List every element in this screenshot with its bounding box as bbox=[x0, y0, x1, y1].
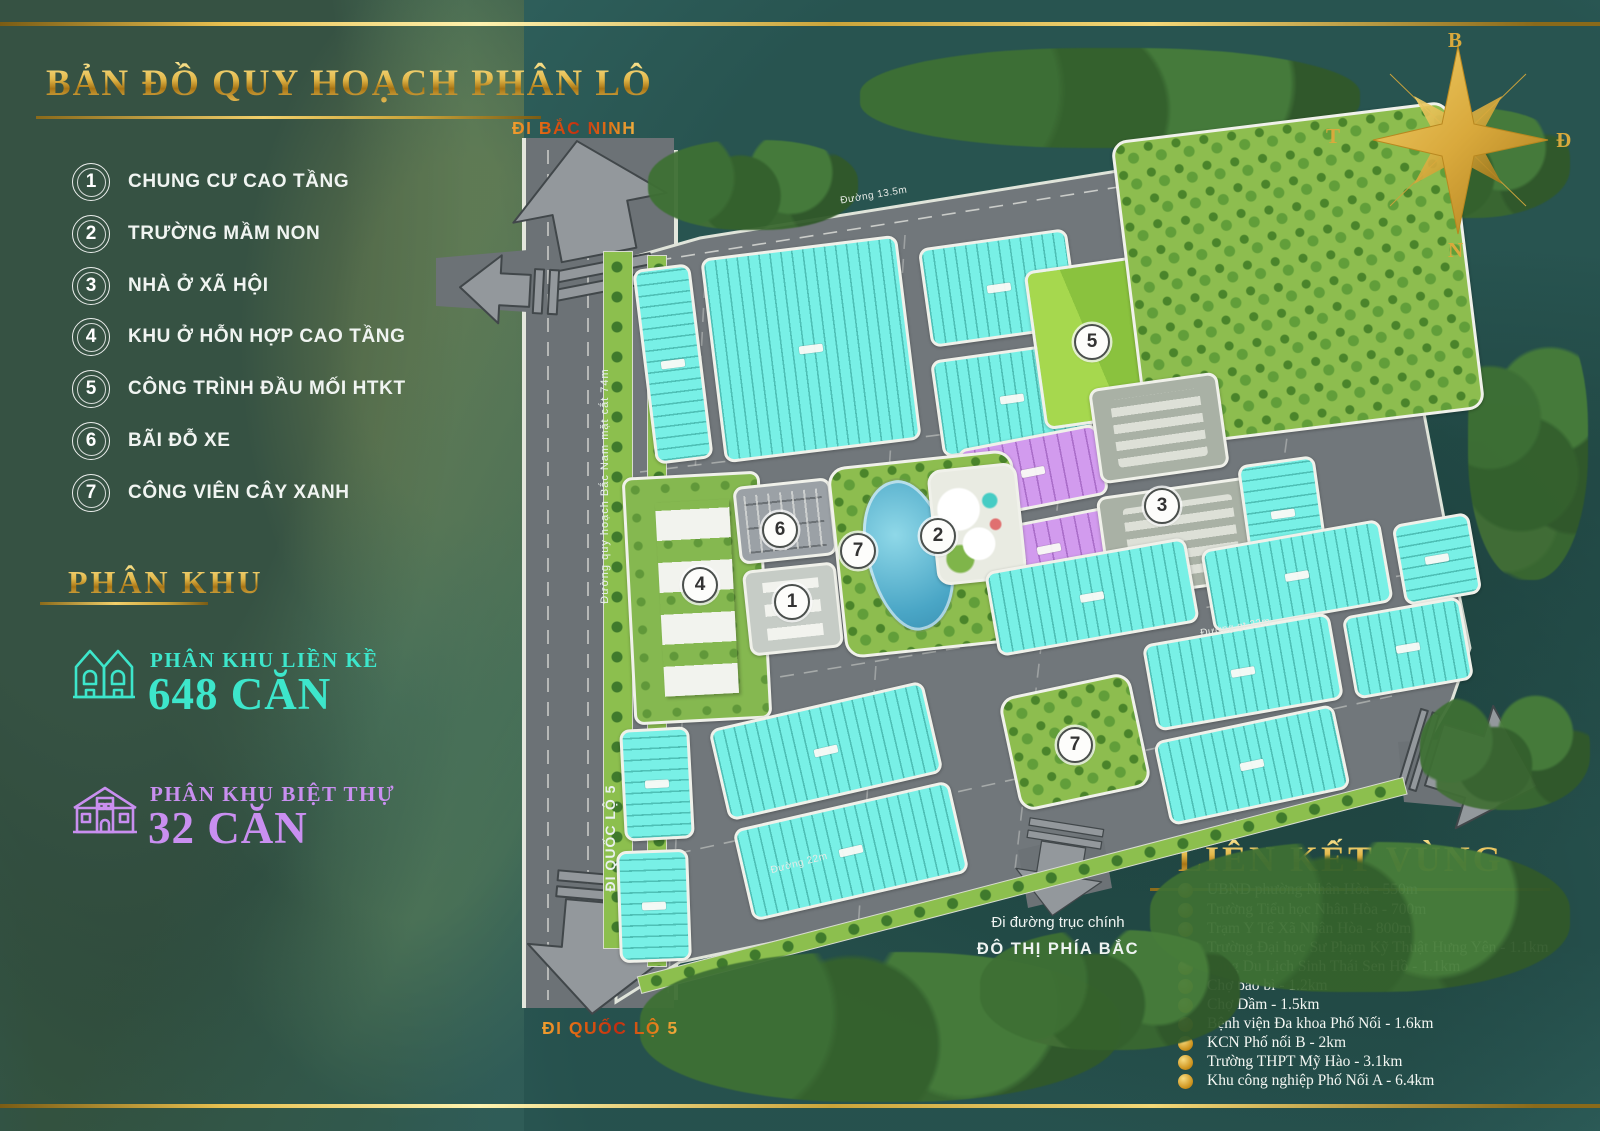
map-marker: 5 bbox=[1074, 324, 1110, 360]
tree-cluster bbox=[648, 140, 858, 230]
tree-cluster bbox=[1468, 300, 1588, 580]
direction-bac-ninh: ĐI BẮC NINH bbox=[512, 118, 636, 139]
compass-main-star bbox=[1373, 46, 1548, 234]
bottom-gold-border bbox=[0, 1104, 1600, 1108]
lot-block-lk bbox=[1391, 512, 1482, 606]
masterplan-poster: BẢN ĐỒ QUY HOẠCH PHÂN LÔ 1 CHUNG CƯ CAO … bbox=[0, 0, 1600, 1131]
road-label-ql5-vertical: ĐI QUỐC LỘ 5 bbox=[602, 768, 618, 908]
axis-label-line2: ĐÔ THỊ PHÍA BẮC bbox=[948, 940, 1168, 959]
direction-quoc-lo-5: ĐI QUỐC LỘ 5 bbox=[542, 1018, 679, 1039]
compass-east-label: Đ bbox=[1556, 128, 1571, 153]
map-marker: 6 bbox=[762, 512, 798, 548]
compass-north-label: B bbox=[1448, 28, 1462, 53]
map-marker: 3 bbox=[1144, 488, 1180, 524]
map-marker: 7 bbox=[1057, 727, 1093, 763]
map-marker: 1 bbox=[774, 584, 810, 620]
compass-south-label: N bbox=[1448, 238, 1463, 263]
compass-west-label: T bbox=[1326, 124, 1340, 149]
townhouse-icon bbox=[72, 644, 136, 702]
compass-rose bbox=[1330, 26, 1590, 256]
map-marker: 2 bbox=[920, 518, 956, 554]
social-housing-block bbox=[1088, 371, 1230, 484]
top-gold-border bbox=[0, 22, 1600, 26]
lot-block-lk bbox=[700, 235, 922, 464]
villa-icon bbox=[72, 780, 138, 838]
axis-label-line1: Đi đường trục chính bbox=[948, 914, 1168, 931]
tree-cluster bbox=[1420, 690, 1590, 810]
road-label-axis-74m: Đường quy hoạch Bắc Nam mặt cắt 74m bbox=[599, 366, 611, 606]
lot-block-lk bbox=[619, 726, 695, 842]
lot-block-lk bbox=[616, 849, 692, 963]
map-marker: 4 bbox=[682, 567, 718, 603]
map-marker: 7 bbox=[840, 533, 876, 569]
